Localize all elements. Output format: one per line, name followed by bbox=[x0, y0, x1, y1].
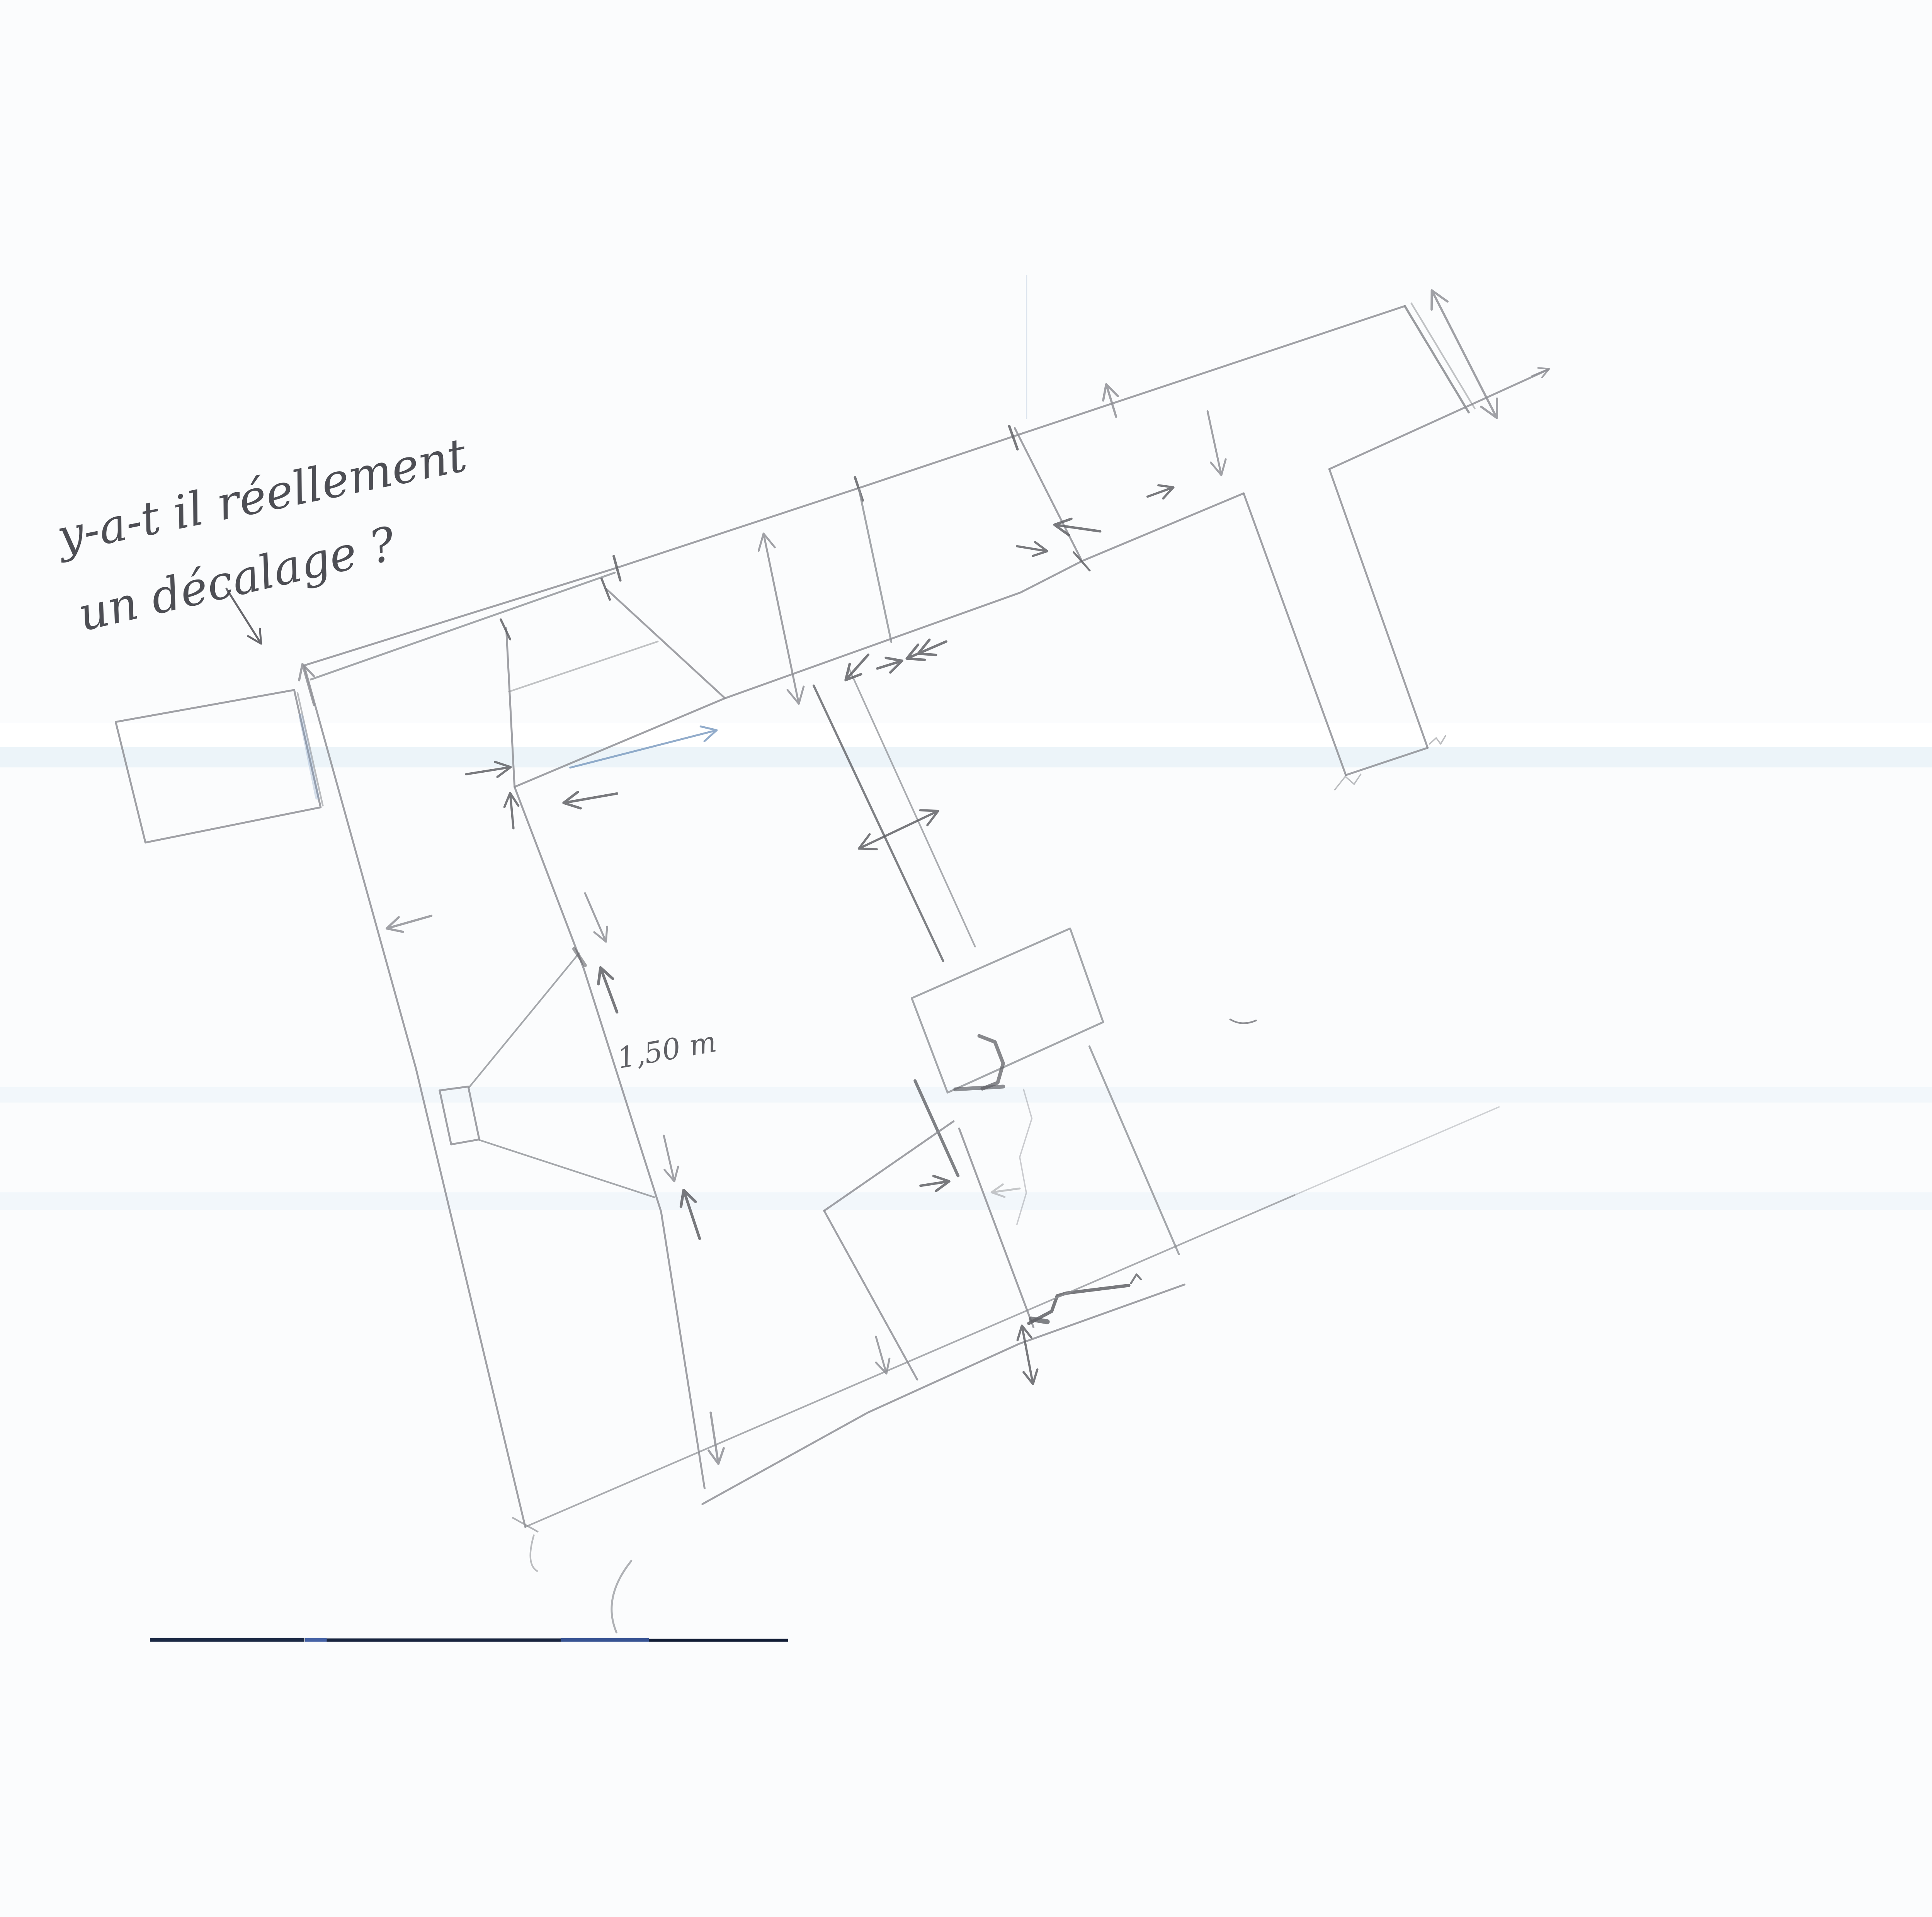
funnel-line-lower bbox=[479, 1140, 654, 1197]
corridor-corner-arrow bbox=[845, 655, 868, 680]
bottom-wall bbox=[702, 1285, 1185, 1504]
comma-curve bbox=[612, 1561, 631, 1632]
partition-wall-1 bbox=[859, 489, 891, 642]
innerwall-up-arrow-1 bbox=[599, 968, 617, 1012]
left-outer-wall-tick bbox=[513, 1518, 537, 1532]
bottom-down-arrow-2 bbox=[876, 1337, 889, 1374]
measurement-label: 1,50 m bbox=[615, 1025, 719, 1076]
scan-band-white bbox=[0, 723, 1932, 747]
garden-boundary bbox=[525, 1195, 1294, 1527]
smile-mark bbox=[1230, 1020, 1256, 1023]
inner-mid-wall-tick bbox=[1074, 552, 1090, 571]
door-scribble-arc bbox=[979, 1036, 1003, 1089]
midwall-arrow-right bbox=[1017, 542, 1047, 556]
funnel-line-upper bbox=[469, 953, 579, 1088]
step-zigzag bbox=[1029, 1285, 1129, 1323]
opening-arrow-up bbox=[504, 793, 518, 828]
window-pane-line bbox=[509, 641, 658, 692]
corner-edge-outer bbox=[1405, 306, 1469, 412]
right-lower-wall bbox=[1089, 1046, 1179, 1254]
bedroom-left-wall bbox=[824, 1211, 917, 1380]
notch-arrow-right bbox=[1148, 485, 1173, 498]
corridor-width-arrow bbox=[859, 810, 938, 849]
wing-left-wall bbox=[1015, 428, 1082, 561]
bottom-edge-mark-4 bbox=[561, 1638, 649, 1642]
door-scribble-base bbox=[955, 1086, 1003, 1089]
box-arrow-right bbox=[920, 1176, 949, 1191]
left-outer-wall-curl bbox=[531, 1535, 537, 1571]
innerwall-down-arrow-2 bbox=[664, 1135, 678, 1181]
bottom-down-arrow-1 bbox=[709, 1413, 724, 1464]
opening-right-side bbox=[607, 589, 725, 698]
scanned-sketch-page: y-a-t il réellementun décalage ?1,50 m bbox=[0, 0, 1932, 1917]
question-text-line1: y-a-t il réellement bbox=[51, 428, 471, 564]
leftwall-arrow bbox=[387, 916, 431, 932]
bottom-edge-mark-2 bbox=[305, 1638, 327, 1642]
bedroom-right-wall bbox=[959, 1128, 1033, 1327]
step-blob bbox=[1031, 1319, 1047, 1322]
bottom-edge-mark-5 bbox=[649, 1639, 788, 1642]
top-outer-wall bbox=[304, 306, 1405, 665]
midwall-arrow-left bbox=[1054, 519, 1100, 535]
scan-band-blue-1 bbox=[0, 747, 1932, 768]
wing-up-arrow bbox=[1103, 384, 1118, 417]
corridor-right-wall bbox=[849, 670, 975, 947]
bottom-edge-mark-3 bbox=[327, 1638, 561, 1642]
scan-band-blue-3 bbox=[0, 1192, 1932, 1210]
wing-down-arrow bbox=[1207, 411, 1226, 475]
tbar-squiggle-left bbox=[1335, 774, 1361, 790]
corridor-arrow-left bbox=[907, 640, 946, 660]
inner-left-wall bbox=[515, 787, 705, 1489]
floor-plan-sketch: y-a-t il réellementun décalage ?1,50 m bbox=[0, 0, 1932, 1917]
opening-arrow-left bbox=[564, 792, 617, 808]
tbar-right-wall bbox=[1329, 469, 1427, 748]
corridor-arrow-right bbox=[877, 658, 902, 673]
innerwall-down-arrow-1 bbox=[585, 893, 607, 942]
bottom-edge-mark-1 bbox=[150, 1638, 304, 1642]
opening-right-tick bbox=[602, 579, 610, 600]
wing-bottom-wall bbox=[1329, 369, 1548, 469]
wall-top-arrow bbox=[299, 664, 314, 705]
top-wall-inner-line bbox=[311, 573, 615, 680]
garden-boundary-faint bbox=[1294, 1107, 1499, 1195]
step-gap-arrow bbox=[1017, 1326, 1037, 1384]
step-hook bbox=[1131, 1275, 1141, 1283]
opening-left-tick bbox=[501, 619, 510, 639]
